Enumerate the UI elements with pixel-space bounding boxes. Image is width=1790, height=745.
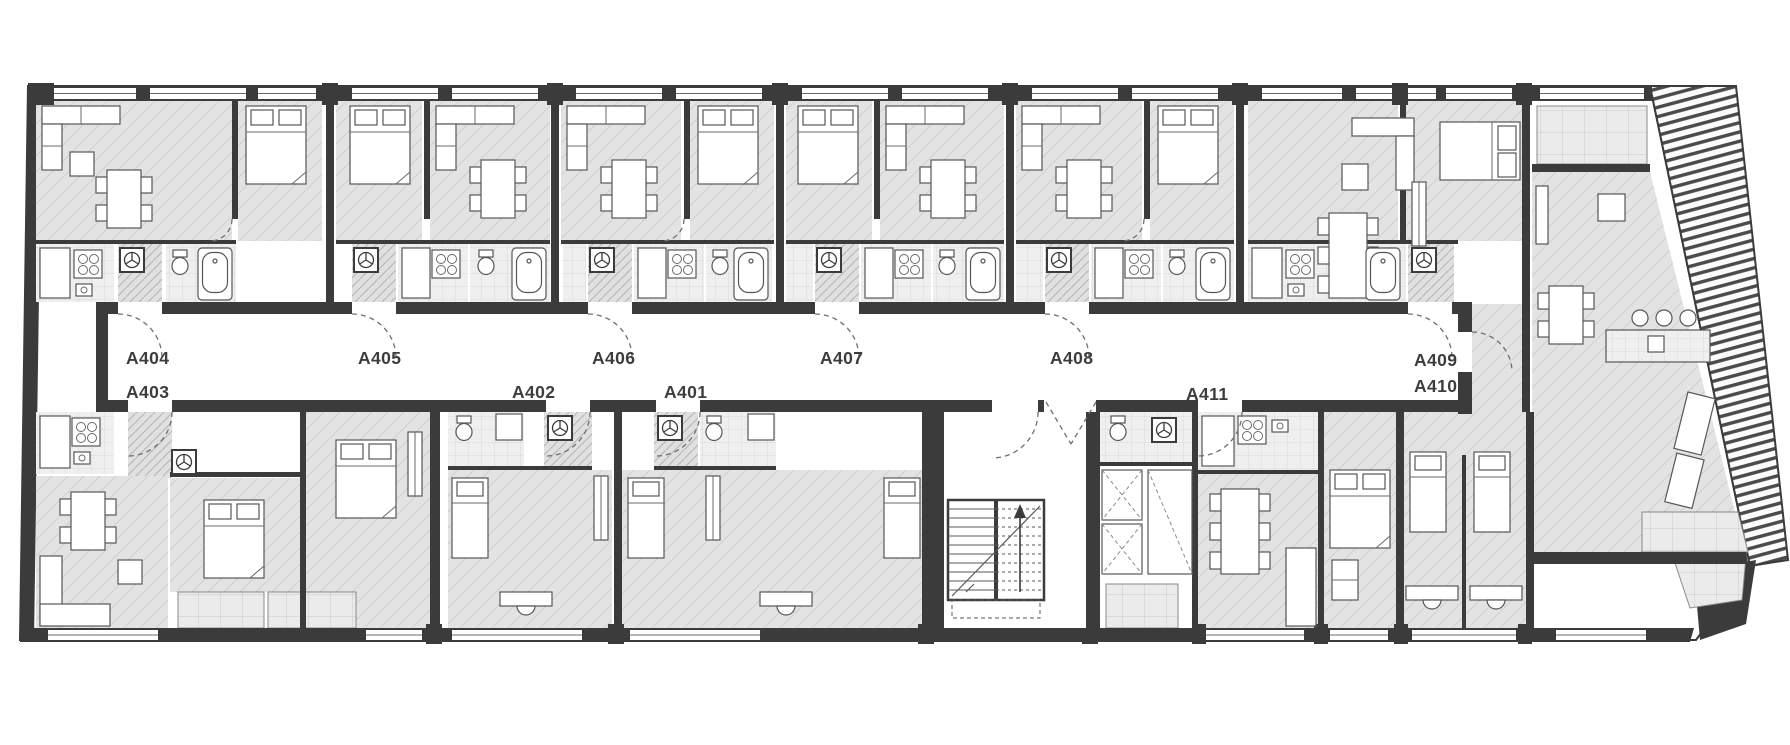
unit-label: A406 — [592, 348, 635, 368]
sofa — [1286, 548, 1316, 626]
coffee-table — [1598, 194, 1625, 221]
toilet — [456, 416, 472, 441]
dining-table — [1210, 489, 1270, 574]
cooktop — [1238, 416, 1266, 444]
bathtub — [512, 248, 546, 300]
bar-stool — [1680, 310, 1696, 326]
corridor-wall-top — [106, 302, 1460, 314]
fan-icon — [1152, 418, 1176, 442]
entry-vestibule — [128, 412, 172, 478]
fan-icon — [1047, 248, 1071, 272]
double-bed — [698, 106, 758, 184]
kitchen-counter — [638, 248, 666, 298]
bar-stool — [1656, 310, 1672, 326]
kitchen-sink — [76, 284, 92, 296]
kitchen-counter — [1202, 416, 1234, 466]
kitchen-counter — [1252, 248, 1282, 298]
single-bed — [884, 478, 920, 558]
cooktop — [1125, 250, 1153, 278]
cooktop — [432, 250, 460, 278]
toilet — [1169, 250, 1185, 275]
sofa — [40, 604, 110, 626]
floor-plan-canvas: A404 A405 A406 A407 A408 A409 A403 A402 … — [0, 0, 1790, 745]
unit-label: A407 — [820, 348, 863, 368]
bathtub — [734, 248, 768, 300]
bar-stool — [1632, 310, 1648, 326]
cooktop — [72, 418, 100, 446]
cooktop — [1286, 250, 1314, 278]
double-bed — [1330, 470, 1390, 548]
unit-label: A403 — [126, 382, 169, 402]
fan-icon — [354, 248, 378, 272]
unit-label: A405 — [358, 348, 401, 368]
island-sink — [1648, 336, 1664, 352]
cooktop — [74, 250, 102, 278]
double-bed — [336, 440, 396, 518]
fan-icon — [658, 416, 682, 440]
balcony — [268, 592, 356, 628]
double-bed — [246, 106, 306, 184]
wardrobe — [594, 476, 608, 540]
bathtub — [1366, 248, 1400, 300]
floor-plan-page: A404 A405 A406 A407 A408 A409 A403 A402 … — [0, 0, 1790, 745]
balcony — [178, 592, 264, 628]
kitchen-sink — [1288, 284, 1304, 296]
cooktop — [668, 250, 696, 278]
toilet — [706, 416, 722, 441]
kitchen-counter — [402, 248, 430, 298]
shower — [496, 414, 522, 440]
wardrobe — [408, 432, 422, 496]
fan-icon — [1412, 248, 1436, 272]
shower — [748, 414, 774, 440]
toilet — [172, 250, 188, 275]
fan-icon — [548, 416, 572, 440]
unit-label: A409 — [1414, 350, 1457, 370]
toilet — [1110, 416, 1126, 441]
double-bed — [204, 500, 264, 578]
fan-icon — [590, 248, 614, 272]
toilet — [939, 250, 955, 275]
cooktop — [895, 250, 923, 278]
wardrobe — [1412, 182, 1426, 246]
coffee-table — [1342, 164, 1368, 190]
bathtub — [198, 248, 232, 300]
unit-label: A410 — [1414, 376, 1457, 396]
double-bed — [1158, 106, 1218, 184]
unit-label: A402 — [512, 382, 555, 402]
corridor — [96, 302, 1472, 414]
kitchen-counter — [1095, 248, 1123, 298]
bathtub — [1196, 248, 1230, 300]
single-bed — [628, 478, 664, 558]
kitchen-counter — [865, 248, 893, 298]
single-bed — [1474, 452, 1510, 532]
balcony — [1106, 584, 1178, 628]
double-bed — [350, 106, 410, 184]
tv-sideboard — [1536, 186, 1548, 244]
kitchen-sink — [74, 452, 90, 464]
fan-icon — [172, 450, 196, 474]
kitchen-sink — [1272, 420, 1288, 432]
unit-label: A401 — [664, 382, 707, 402]
unit-label: A404 — [126, 348, 169, 368]
balcony — [1642, 512, 1748, 552]
fan-icon — [817, 248, 841, 272]
coffee-table — [70, 152, 94, 176]
double-bed — [798, 106, 858, 184]
toilet — [478, 250, 494, 275]
toilet — [712, 250, 728, 275]
bathtub — [966, 248, 1000, 300]
wardrobe — [706, 476, 720, 540]
kitchen-counter — [40, 248, 70, 298]
fan-icon — [120, 248, 144, 272]
single-bed — [1410, 452, 1446, 532]
unit-label: A408 — [1050, 348, 1093, 368]
unit-label: A411 — [1186, 384, 1228, 404]
staircase — [948, 500, 1044, 618]
single-bed — [452, 478, 488, 558]
corridor-wall-bottom — [106, 400, 1460, 412]
kitchen-counter — [40, 416, 70, 468]
balcony — [1537, 106, 1647, 164]
sofa — [1352, 118, 1414, 136]
coffee-table — [118, 560, 142, 584]
sofa — [1396, 136, 1414, 190]
